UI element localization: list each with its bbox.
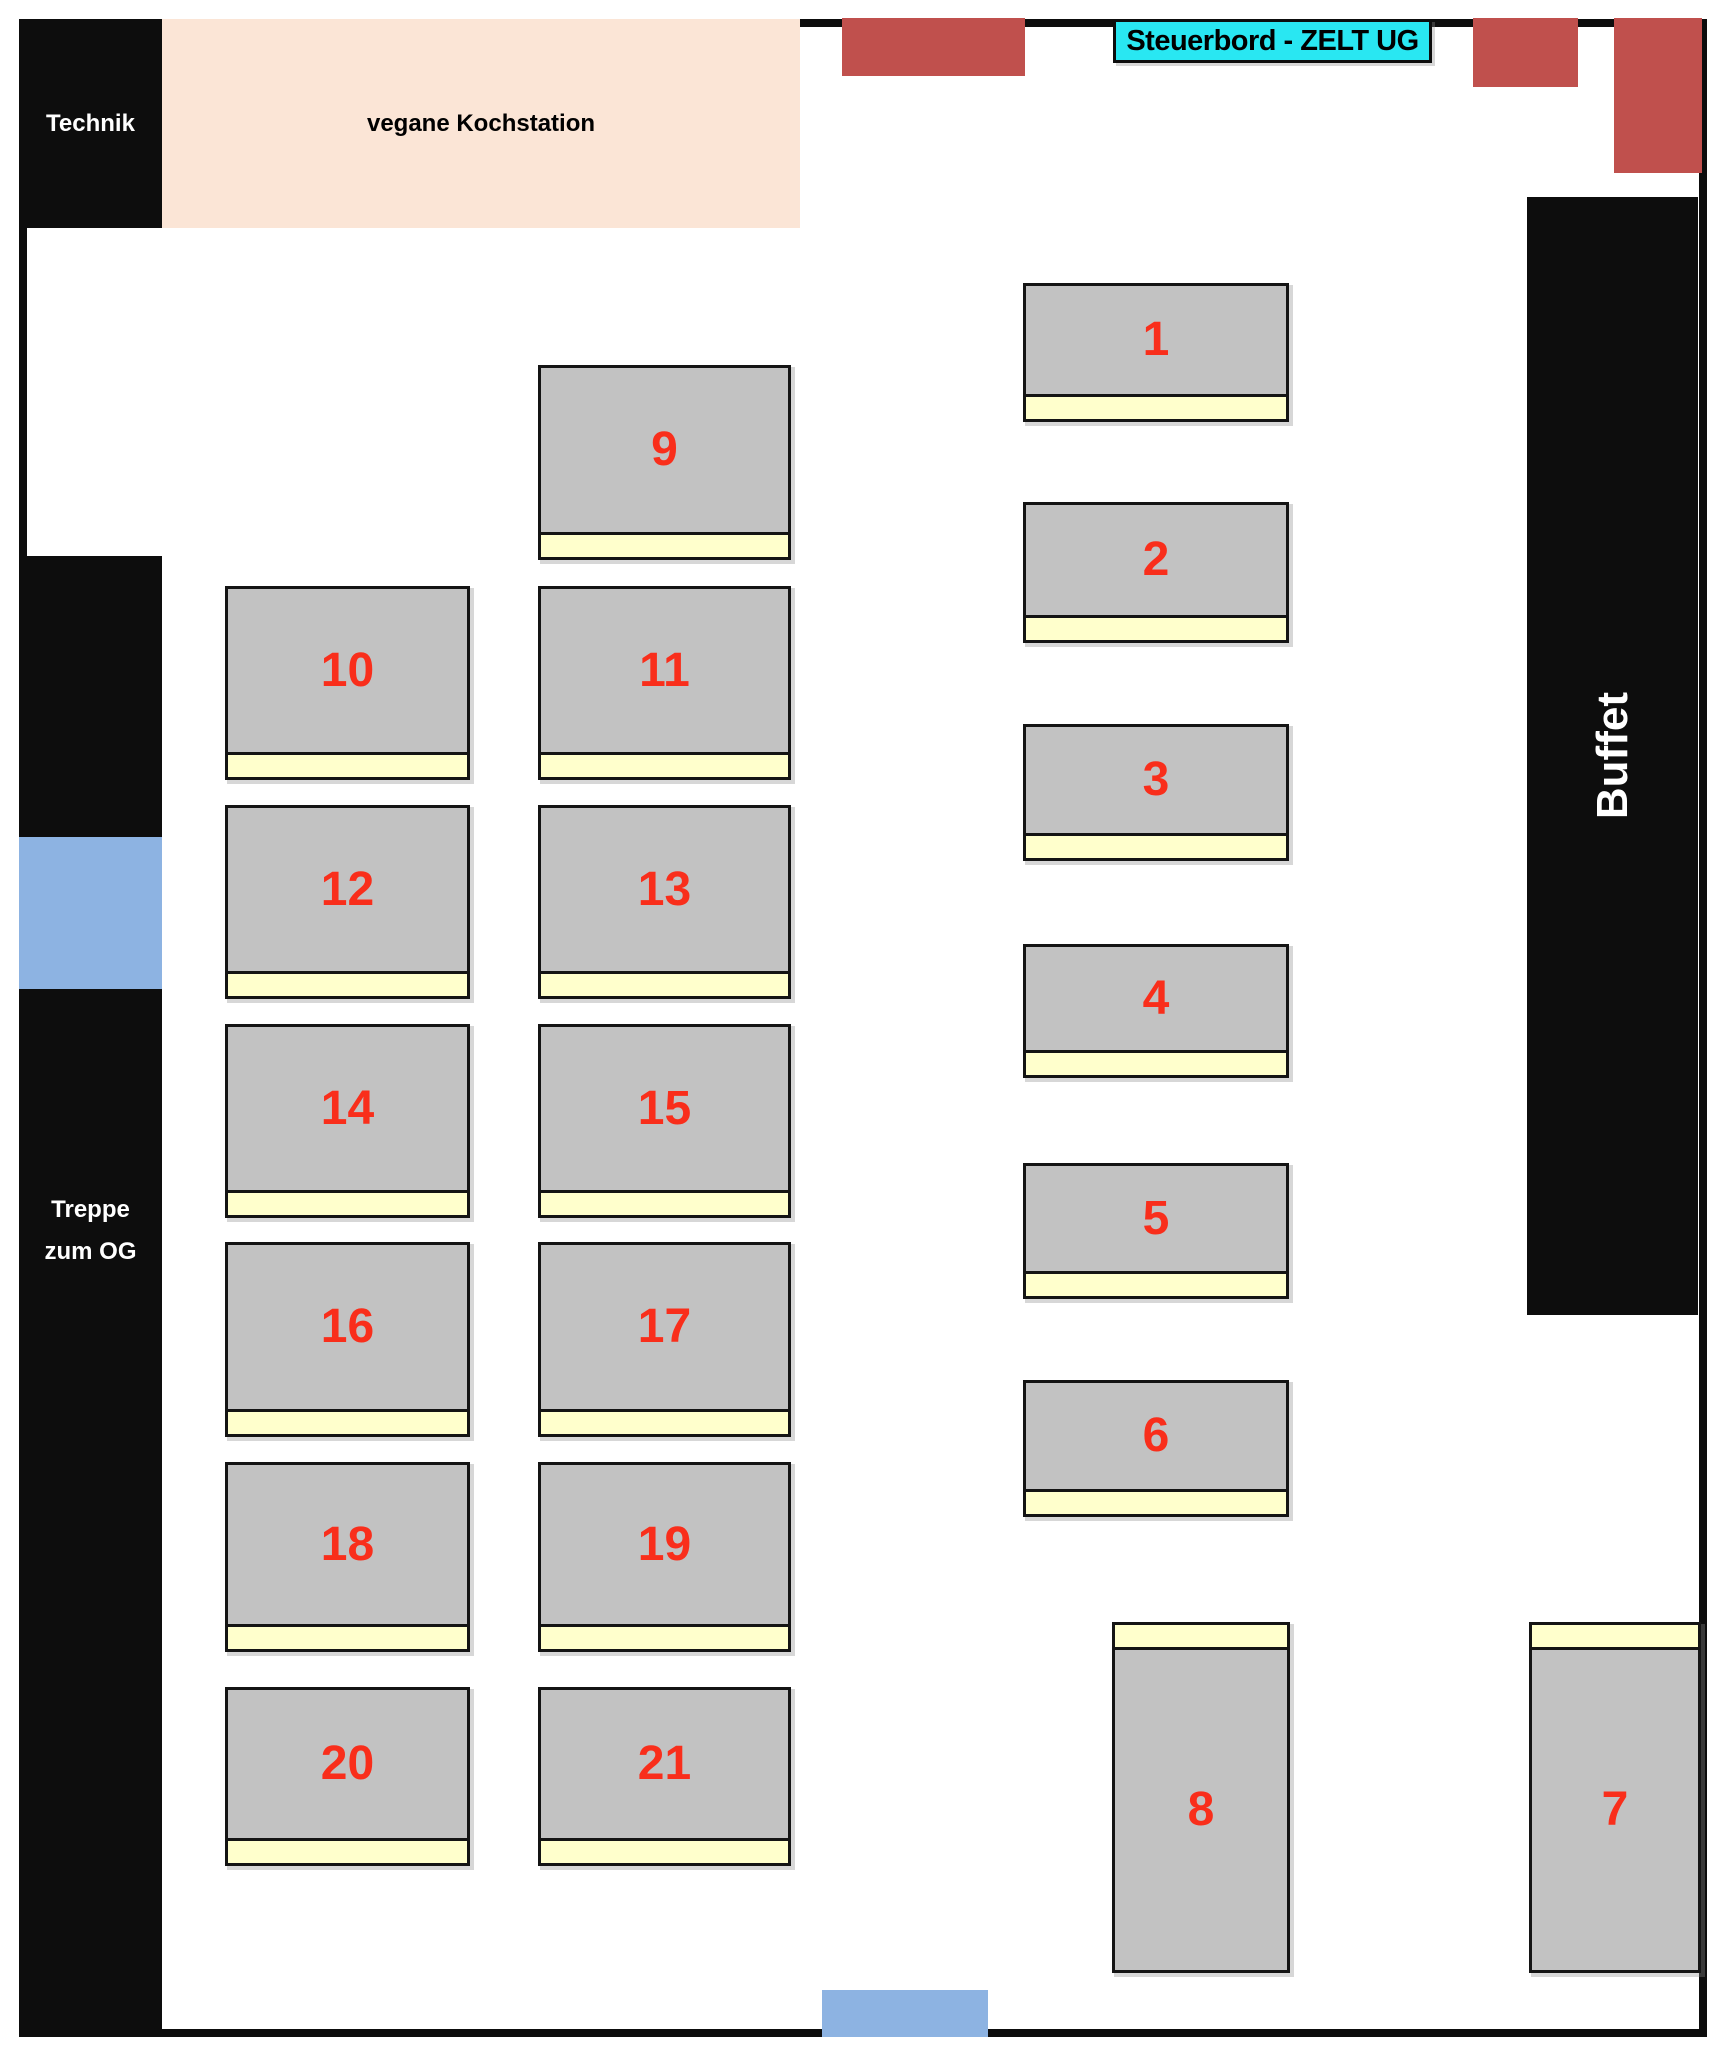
table-21-surface: 21 xyxy=(541,1690,788,1838)
table-8-bench-strip xyxy=(1115,1625,1287,1650)
bottom-door-blue xyxy=(822,1990,988,2037)
table-6: 6 xyxy=(1023,1380,1289,1517)
table-8: 8 xyxy=(1112,1622,1290,1973)
table-10-surface: 10 xyxy=(228,589,467,752)
table-15-number: 15 xyxy=(638,1085,691,1133)
table-5: 5 xyxy=(1023,1163,1289,1299)
table-9-surface: 9 xyxy=(541,368,788,532)
table-15: 15 xyxy=(538,1024,791,1218)
table-19: 19 xyxy=(538,1462,791,1652)
table-12-number: 12 xyxy=(321,866,374,914)
left-wall-upper-block xyxy=(19,556,162,837)
table-6-bench-strip xyxy=(1026,1489,1286,1514)
table-4-bench-strip xyxy=(1026,1050,1286,1075)
table-11-surface: 11 xyxy=(541,589,788,752)
table-20-surface: 20 xyxy=(228,1690,467,1838)
table-13-bench-strip xyxy=(541,971,788,996)
table-10: 10 xyxy=(225,586,470,780)
table-3: 3 xyxy=(1023,724,1289,861)
table-3-bench-strip xyxy=(1026,833,1286,858)
table-11-number: 11 xyxy=(639,647,690,695)
table-3-number: 3 xyxy=(1143,756,1170,804)
table-1-number: 1 xyxy=(1143,316,1170,364)
table-15-surface: 15 xyxy=(541,1027,788,1190)
table-8-surface: 8 xyxy=(1115,1650,1287,1970)
red-block-top-right-1 xyxy=(1473,18,1578,87)
table-1-bench-strip xyxy=(1026,394,1286,419)
table-5-number: 5 xyxy=(1143,1195,1170,1243)
plan-title-plate: Steuerbord - ZELT UG xyxy=(1113,19,1432,63)
plan-title: Steuerbord - ZELT UG xyxy=(1126,25,1418,58)
table-17-number: 17 xyxy=(638,1303,691,1351)
table-8-number: 8 xyxy=(1188,1786,1215,1834)
table-14-number: 14 xyxy=(321,1085,374,1133)
table-1-surface: 1 xyxy=(1026,286,1286,394)
technik-room-label: Technik xyxy=(46,110,135,138)
buffet-counter: Buffet xyxy=(1527,197,1698,1315)
table-14-surface: 14 xyxy=(228,1027,467,1190)
table-16: 16 xyxy=(225,1242,470,1437)
table-18-surface: 18 xyxy=(228,1465,467,1624)
stairs-to-og-label: Treppezum OG xyxy=(19,989,162,1273)
table-2-bench-strip xyxy=(1026,615,1286,640)
stairs-to-og: Treppezum OG xyxy=(19,989,162,2037)
table-6-surface: 6 xyxy=(1026,1383,1286,1489)
vegan-cooking-station: vegane Kochstation xyxy=(162,19,800,228)
table-16-surface: 16 xyxy=(228,1245,467,1409)
table-19-number: 19 xyxy=(638,1521,691,1569)
red-block-top-right-2 xyxy=(1614,18,1702,173)
left-door-blue xyxy=(19,837,162,989)
technik-room: Technik xyxy=(19,19,162,228)
table-13-number: 13 xyxy=(638,866,691,914)
table-9-number: 9 xyxy=(651,426,678,474)
table-18-number: 18 xyxy=(321,1521,374,1569)
table-9: 9 xyxy=(538,365,791,560)
table-21: 21 xyxy=(538,1687,791,1866)
table-14-bench-strip xyxy=(228,1190,467,1215)
table-21-bench-strip xyxy=(541,1838,788,1863)
table-5-bench-strip xyxy=(1026,1271,1286,1296)
table-19-bench-strip xyxy=(541,1624,788,1649)
table-4-number: 4 xyxy=(1143,975,1170,1023)
table-5-surface: 5 xyxy=(1026,1166,1286,1271)
table-12: 12 xyxy=(225,805,470,999)
table-17: 17 xyxy=(538,1242,791,1437)
table-20-number: 20 xyxy=(321,1740,374,1788)
table-12-surface: 12 xyxy=(228,808,467,971)
table-19-surface: 19 xyxy=(541,1465,788,1624)
table-4: 4 xyxy=(1023,944,1289,1078)
table-7-surface: 7 xyxy=(1532,1650,1698,1970)
table-7-number: 7 xyxy=(1602,1786,1629,1834)
table-4-surface: 4 xyxy=(1026,947,1286,1050)
table-20-bench-strip xyxy=(228,1838,467,1863)
table-11: 11 xyxy=(538,586,791,780)
table-20: 20 xyxy=(225,1687,470,1866)
table-13: 13 xyxy=(538,805,791,999)
vegan-cooking-station-label: vegane Kochstation xyxy=(367,110,595,138)
red-block-top-center xyxy=(842,18,1025,76)
stairs-to-og-label-line-2: zum OG xyxy=(19,1231,162,1273)
table-7: 7 xyxy=(1529,1622,1701,1973)
table-2-surface: 2 xyxy=(1026,505,1286,615)
table-16-bench-strip xyxy=(228,1409,467,1434)
table-2-number: 2 xyxy=(1143,536,1170,584)
table-9-bench-strip xyxy=(541,532,788,557)
table-18-bench-strip xyxy=(228,1624,467,1649)
table-10-number: 10 xyxy=(321,647,374,695)
table-7-bench-strip xyxy=(1532,1625,1698,1650)
table-2: 2 xyxy=(1023,502,1289,643)
table-17-surface: 17 xyxy=(541,1245,788,1409)
table-21-number: 21 xyxy=(638,1740,691,1788)
table-15-bench-strip xyxy=(541,1190,788,1215)
table-3-surface: 3 xyxy=(1026,727,1286,833)
table-12-bench-strip xyxy=(228,971,467,996)
table-18: 18 xyxy=(225,1462,470,1652)
table-10-bench-strip xyxy=(228,752,467,777)
table-6-number: 6 xyxy=(1143,1412,1170,1460)
table-16-number: 16 xyxy=(321,1303,374,1351)
stairs-to-og-label-line-1: Treppe xyxy=(19,1189,162,1231)
buffet-counter-label: Buffet xyxy=(1588,692,1638,819)
floor-plan: Steuerbord - ZELT UG Technikvegane Kochs… xyxy=(0,0,1717,2048)
table-1: 1 xyxy=(1023,283,1289,422)
table-14: 14 xyxy=(225,1024,470,1218)
table-17-bench-strip xyxy=(541,1409,788,1434)
table-13-surface: 13 xyxy=(541,808,788,971)
table-11-bench-strip xyxy=(541,752,788,777)
